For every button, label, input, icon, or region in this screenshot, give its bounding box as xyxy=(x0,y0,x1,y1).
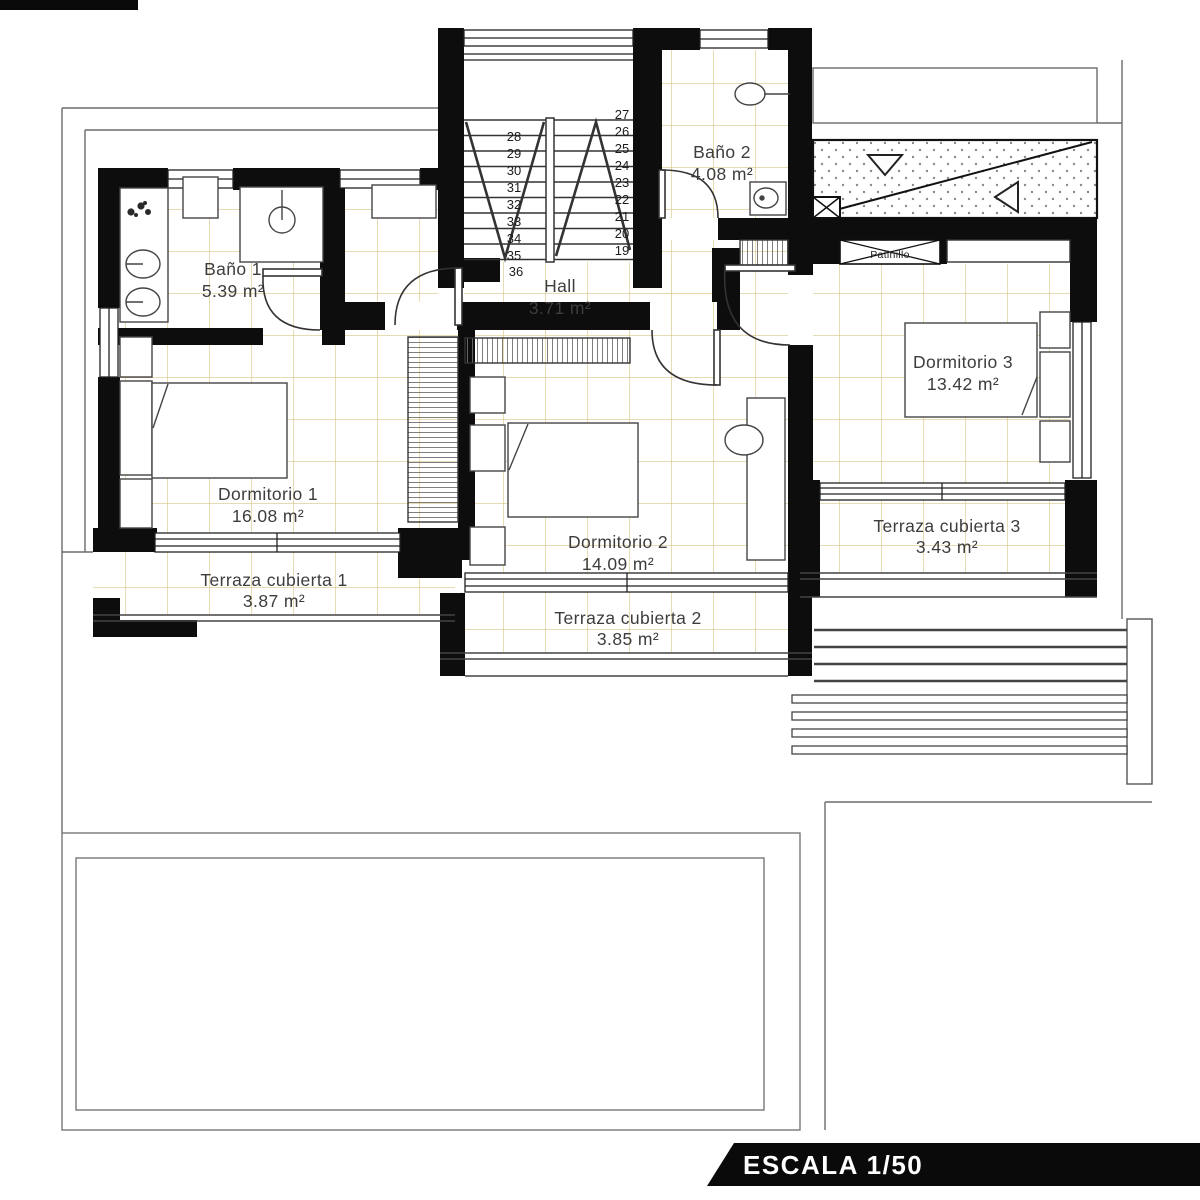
scale-banner: ESCALA 1/50 xyxy=(707,1143,1200,1186)
floor-plan-page: Baño 1 5.39 m² Baño 2 4.08 m² Hall 3.71 … xyxy=(0,0,1200,1200)
label-bano1-area: 5.39 m² xyxy=(202,281,264,301)
label-terraza1-area: 3.87 m² xyxy=(243,591,305,611)
stair-step-number: 25 xyxy=(615,141,629,156)
label-dorm3-name: Dormitorio 3 xyxy=(913,352,1013,372)
stair-step-number: 23 xyxy=(615,175,629,190)
closet-dorm3 xyxy=(947,240,1070,262)
window-stairs xyxy=(464,30,633,46)
label-patinillo: Patinillo xyxy=(870,245,909,265)
window-dorm1-left xyxy=(100,308,118,377)
label-dorm1-name: Dormitorio 1 xyxy=(218,484,318,504)
stair-step-number: 26 xyxy=(615,124,629,139)
stair-step-number: 31 xyxy=(507,180,521,195)
label-terraza2-area: 3.85 m² xyxy=(597,629,659,649)
label-bano2-area: 4.08 m² xyxy=(691,164,753,184)
label-dorm1-area: 16.08 m² xyxy=(232,506,304,526)
label-terraza3-area: 3.43 m² xyxy=(916,537,978,557)
label-bano2-name: Baño 2 xyxy=(693,142,751,162)
wardrobe-divider xyxy=(408,337,458,522)
roof-hatch-band xyxy=(813,140,1097,218)
label-terraza2-name: Terraza cubierta 2 xyxy=(554,608,701,628)
stair-step-number: 27 xyxy=(615,107,629,122)
stair-step-number: 29 xyxy=(507,146,521,161)
slider-dorm3 xyxy=(820,483,1065,500)
label-hall-area: 3.71 m² xyxy=(529,298,591,318)
stair-step-number: 33 xyxy=(507,214,521,229)
stair-step-number: 34 xyxy=(507,231,521,246)
stair-step-number: 21 xyxy=(615,209,629,224)
window-bano2 xyxy=(700,30,768,48)
scale-banner-text: ESCALA 1/50 xyxy=(743,1150,923,1181)
washbasin-bano2 xyxy=(750,182,786,215)
label-terraza1-name: Terraza cubierta 1 xyxy=(200,570,347,590)
shower-bano1 xyxy=(240,187,323,262)
label-dorm2-name: Dormitorio 2 xyxy=(568,532,668,552)
pergola-slats xyxy=(792,630,1127,754)
label-dorm2-area: 14.09 m² xyxy=(582,554,654,574)
staircase xyxy=(464,118,633,262)
window-dorm3-right xyxy=(1073,322,1091,478)
cabinet-closet xyxy=(372,185,436,218)
stair-step-number: 30 xyxy=(507,163,521,178)
stair-step-number: 28 xyxy=(507,129,521,144)
cabinet-bano1 xyxy=(183,177,218,218)
label-terraza3-name: Terraza cubierta 3 xyxy=(873,516,1020,536)
label-bano1-name: Baño 1 xyxy=(204,259,262,279)
vanity-bano1 xyxy=(120,188,168,322)
floor-plan-drawing xyxy=(0,0,1200,1200)
stair-step-number: 22 xyxy=(615,192,629,207)
label-dorm3-area: 13.42 m² xyxy=(927,374,999,394)
slider-dorm2 xyxy=(465,573,788,592)
wardrobe-corridor xyxy=(740,240,788,266)
stair-divider xyxy=(546,118,554,262)
chair-dorm2 xyxy=(725,425,763,455)
label-hall-name: Hall xyxy=(544,276,576,296)
stair-step-number: 36 xyxy=(509,264,523,279)
stair-step-number: 35 xyxy=(507,248,521,263)
roof-x-box xyxy=(813,197,840,218)
wardrobe-dorm2-top xyxy=(465,338,630,363)
slider-dorm1 xyxy=(155,533,400,552)
stair-step-number: 20 xyxy=(615,226,629,241)
stair-step-number: 24 xyxy=(615,158,629,173)
stair-step-number: 19 xyxy=(615,243,629,258)
stair-step-number: 32 xyxy=(507,197,521,212)
